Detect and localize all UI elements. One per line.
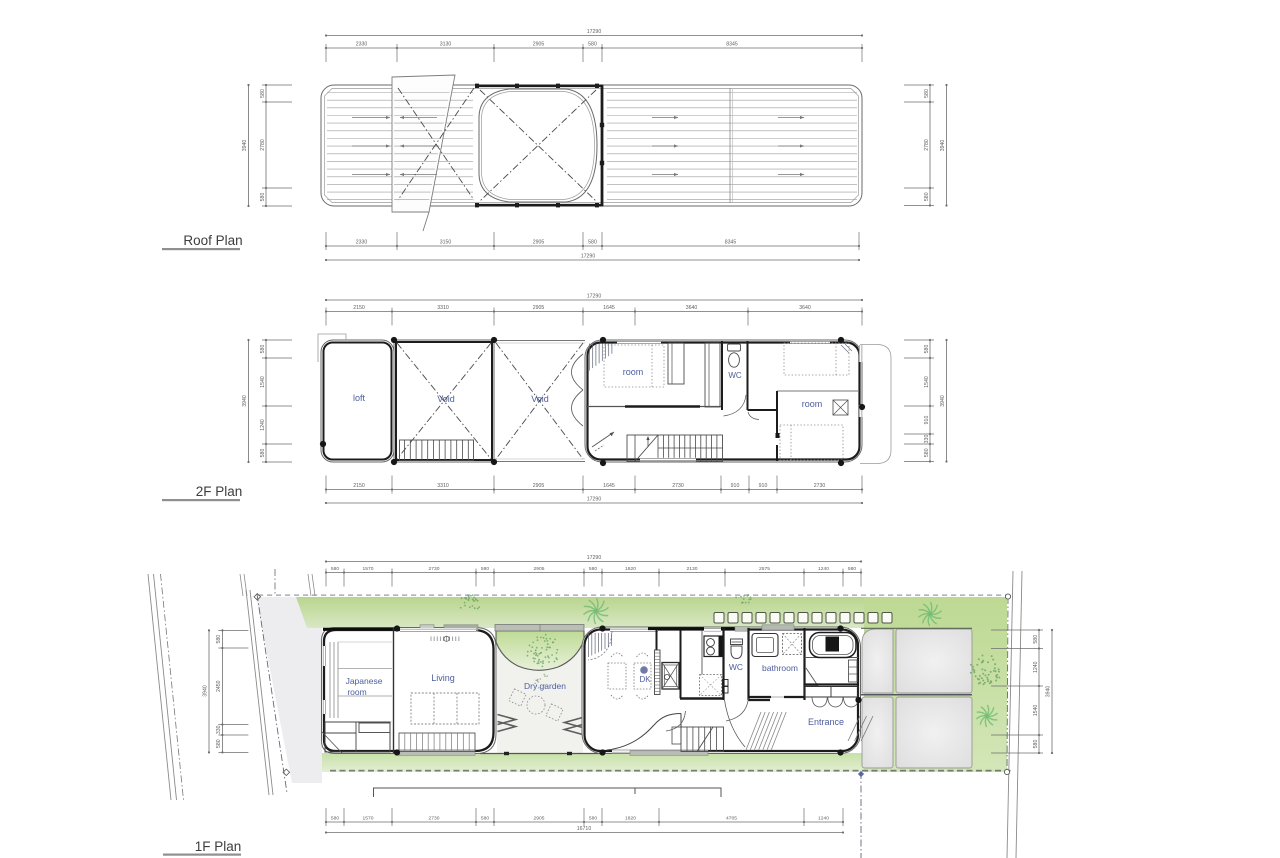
svg-text:2330: 2330 [356, 240, 368, 246]
svg-text:580: 580 [924, 448, 930, 457]
svg-text:580: 580 [331, 566, 339, 572]
svg-text:16710: 16710 [577, 826, 592, 832]
svg-text:room: room [347, 687, 366, 697]
svg-text:330: 330 [216, 725, 222, 734]
svg-text:Living: Living [431, 673, 455, 683]
svg-text:1240: 1240 [260, 419, 266, 431]
svg-text:17290: 17290 [587, 555, 602, 561]
svg-text:WC: WC [728, 371, 742, 380]
svg-text:3310: 3310 [437, 305, 449, 311]
svg-text:580: 580 [216, 739, 222, 748]
svg-text:3640: 3640 [686, 305, 698, 311]
svg-text:580: 580 [260, 89, 266, 98]
svg-text:1240: 1240 [818, 816, 829, 822]
svg-text:17290: 17290 [587, 294, 602, 300]
svg-text:580: 580 [924, 345, 930, 354]
svg-text:1540: 1540 [260, 376, 266, 388]
svg-text:2730: 2730 [814, 483, 826, 489]
svg-text:2130: 2130 [687, 566, 698, 572]
svg-text:1645: 1645 [603, 483, 615, 489]
svg-text:910: 910 [924, 416, 930, 425]
svg-text:580: 580 [1033, 635, 1039, 644]
svg-text:2905: 2905 [533, 42, 545, 48]
svg-text:DK: DK [639, 675, 651, 684]
svg-text:1820: 1820 [625, 816, 636, 822]
svg-text:2150: 2150 [353, 483, 365, 489]
svg-text:loft: loft [353, 393, 366, 403]
svg-text:17290: 17290 [581, 254, 596, 260]
svg-text:1F Plan: 1F Plan [195, 839, 242, 854]
svg-text:580: 580 [481, 566, 489, 572]
svg-text:3940: 3940 [940, 140, 946, 152]
svg-text:8345: 8345 [725, 240, 737, 246]
svg-text:3940: 3940 [940, 395, 946, 407]
svg-text:1645: 1645 [603, 305, 615, 311]
svg-text:1240: 1240 [1033, 661, 1039, 673]
svg-text:2730: 2730 [429, 816, 440, 822]
svg-text:17290: 17290 [587, 497, 602, 503]
svg-text:580: 580 [481, 816, 489, 822]
svg-text:580: 580 [589, 566, 597, 572]
svg-text:1570: 1570 [363, 566, 374, 572]
svg-text:3640: 3640 [799, 305, 811, 311]
svg-text:580: 580 [588, 240, 597, 246]
svg-text:2150: 2150 [353, 305, 365, 311]
svg-text:2575: 2575 [759, 566, 770, 572]
svg-text:2730: 2730 [672, 483, 684, 489]
svg-text:2905: 2905 [534, 566, 545, 572]
svg-text:2905: 2905 [533, 305, 545, 311]
svg-text:1820: 1820 [625, 566, 636, 572]
svg-text:2450: 2450 [216, 680, 222, 692]
svg-text:3940: 3940 [242, 395, 248, 407]
svg-text:Roof Plan: Roof Plan [183, 233, 242, 248]
svg-text:3150: 3150 [440, 240, 452, 246]
svg-text:2F Plan: 2F Plan [196, 484, 243, 499]
svg-text:580: 580 [331, 816, 339, 822]
svg-text:580: 580 [588, 42, 597, 48]
svg-text:2905: 2905 [533, 240, 545, 246]
svg-text:580: 580 [589, 816, 597, 822]
svg-text:580: 580 [216, 635, 222, 644]
svg-text:580: 580 [260, 193, 266, 202]
svg-text:1540: 1540 [1033, 705, 1039, 717]
svg-text:1240: 1240 [818, 566, 829, 572]
svg-text:2905: 2905 [533, 483, 545, 489]
svg-text:Void: Void [531, 394, 549, 404]
svg-text:3940: 3940 [242, 140, 248, 152]
svg-text:2905: 2905 [534, 816, 545, 822]
svg-text:room: room [623, 367, 644, 377]
svg-text:3310: 3310 [437, 483, 449, 489]
svg-text:1540: 1540 [924, 376, 930, 388]
svg-text:2330: 2330 [356, 42, 368, 48]
svg-text:3940: 3940 [203, 685, 209, 697]
svg-text:2780: 2780 [260, 139, 266, 151]
svg-text:2780: 2780 [924, 139, 930, 151]
svg-text:4705: 4705 [726, 816, 737, 822]
svg-text:bathroom: bathroom [762, 663, 798, 673]
svg-text:3130: 3130 [440, 42, 452, 48]
svg-text:Dry garden: Dry garden [524, 681, 566, 691]
svg-text:Void: Void [437, 394, 455, 404]
svg-text:17290: 17290 [587, 29, 602, 35]
svg-text:580: 580 [924, 192, 930, 201]
svg-text:Japanese: Japanese [346, 676, 383, 686]
svg-text:580: 580 [260, 345, 266, 354]
svg-text:330: 330 [924, 435, 930, 444]
svg-text:room: room [802, 399, 823, 409]
svg-text:910: 910 [731, 483, 740, 489]
svg-text:3940: 3940 [1046, 686, 1052, 698]
svg-text:8345: 8345 [726, 42, 738, 48]
svg-text:2730: 2730 [429, 566, 440, 572]
svg-text:910: 910 [759, 483, 768, 489]
svg-text:WC: WC [729, 662, 743, 672]
svg-text:580: 580 [260, 449, 266, 458]
svg-text:580: 580 [924, 89, 930, 98]
svg-text:580: 580 [1033, 740, 1039, 749]
svg-text:1570: 1570 [363, 816, 374, 822]
svg-text:Entrance: Entrance [808, 717, 844, 727]
svg-text:580: 580 [848, 566, 856, 572]
